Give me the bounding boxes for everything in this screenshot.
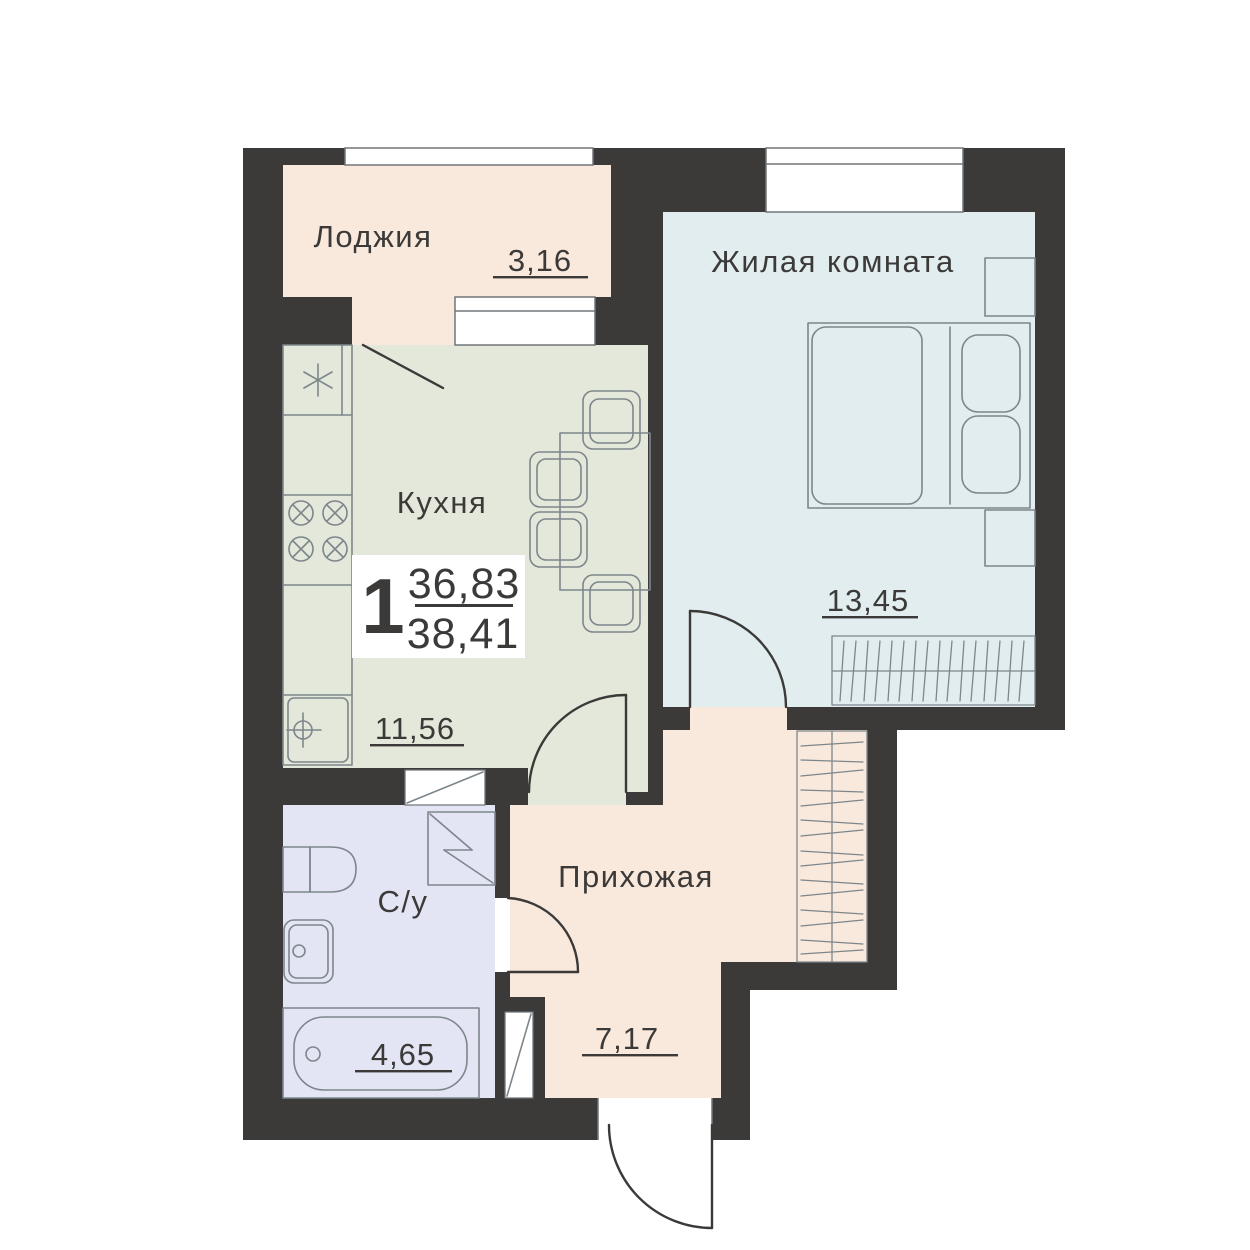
vent-shaft-icon [405, 770, 485, 805]
loggia-doorway-floor [352, 297, 455, 347]
wall [595, 297, 663, 345]
apartment-number: 1 [361, 562, 404, 650]
kitchen-area: 11,56 [375, 711, 455, 746]
bathroom-area: 4,65 [371, 1037, 435, 1072]
kitchen-label: Кухня [397, 485, 487, 520]
loggia-area-underline [493, 276, 588, 278]
kitchen-loggia-window [455, 297, 595, 345]
floor-plan-svg: Лоджия 3,16 Жилая комната 13,45 Кухня 11… [0, 0, 1250, 1250]
vent-shaft-icon [505, 1012, 533, 1098]
loggia-window [345, 148, 593, 165]
loggia-area: 3,16 [508, 243, 572, 278]
wall [533, 997, 545, 1098]
fraction-line [415, 604, 513, 607]
wall [1035, 148, 1065, 730]
wall [243, 1098, 598, 1140]
wall [495, 805, 510, 898]
wall [867, 730, 897, 962]
room-living [663, 212, 1035, 707]
hallway-area-underline [582, 1054, 678, 1056]
wall [243, 148, 283, 1140]
entrance-door [609, 1125, 712, 1228]
total-area-value: 38,41 [407, 610, 520, 658]
kitchen-area-underline [370, 744, 464, 746]
living-room-area: 13,45 [827, 583, 910, 618]
floor-plan: Лоджия 3,16 Жилая комната 13,45 Кухня 11… [0, 0, 1250, 1250]
bathroom-area-underline [355, 1070, 452, 1072]
living-area-value: 36,83 [408, 560, 521, 608]
wall [243, 297, 352, 345]
wall [787, 707, 1065, 730]
wall [712, 1098, 750, 1140]
wall [626, 792, 652, 805]
wall [721, 962, 897, 990]
loggia-label: Лоджия [314, 219, 433, 254]
living-room-label: Жилая комната [711, 244, 954, 279]
living-room-window [766, 148, 963, 212]
hallway-label: Прихожая [558, 859, 714, 894]
hallway-area: 7,17 [595, 1021, 659, 1056]
wall [663, 707, 690, 730]
living-room-area-underline [822, 616, 918, 618]
bathroom-label: С/у [378, 884, 429, 919]
